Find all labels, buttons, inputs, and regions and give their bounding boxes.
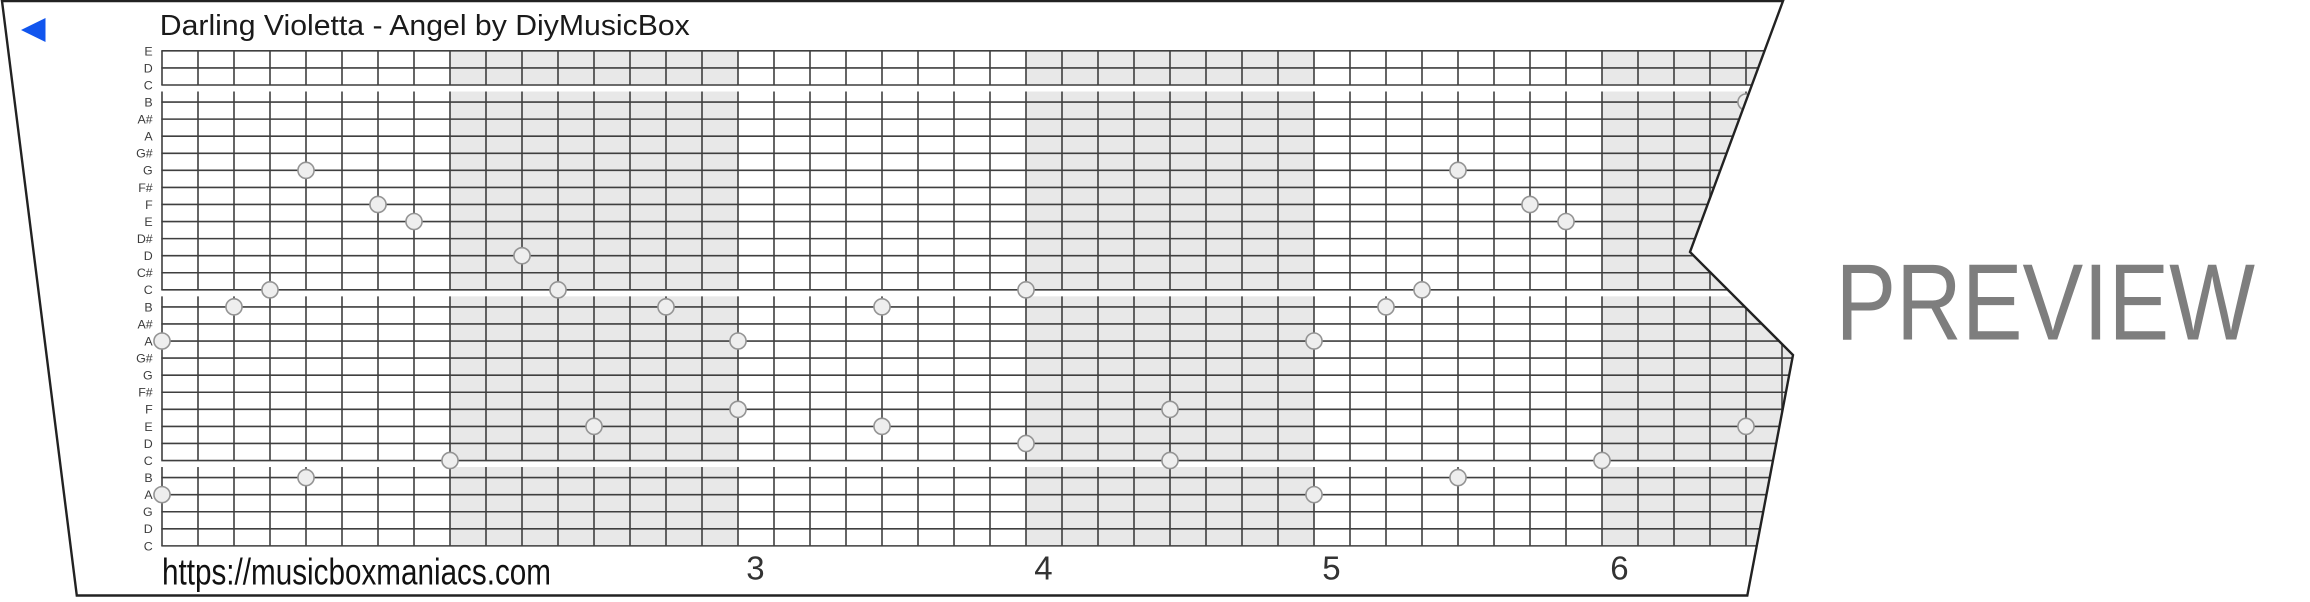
svg-text:B: B (144, 471, 152, 485)
svg-text:E: E (144, 420, 152, 434)
svg-text:PREVIEW: PREVIEW (1836, 242, 2256, 364)
svg-text:B: B (144, 95, 152, 109)
svg-text:C: C (144, 78, 153, 92)
svg-text:F: F (145, 403, 153, 417)
svg-text:F#: F# (138, 386, 153, 400)
svg-text:G: G (143, 369, 153, 383)
svg-text:C#: C# (137, 266, 153, 280)
svg-text:D: D (144, 437, 153, 451)
svg-text:A: A (144, 130, 153, 144)
svg-text:Darling Violetta - Angel by Di: Darling Violetta - Angel by DiyMusicBox (160, 10, 691, 42)
svg-text:G#: G# (136, 352, 153, 366)
svg-text:A#: A# (138, 317, 153, 331)
svg-text:5: 5 (1322, 550, 1340, 587)
svg-text:E: E (144, 44, 152, 58)
svg-text:G: G (143, 164, 153, 178)
svg-text:A#: A# (138, 113, 153, 127)
svg-text:D#: D# (137, 232, 153, 246)
svg-text:A: A (144, 488, 153, 502)
svg-text:G: G (143, 505, 153, 519)
svg-text:C: C (144, 539, 153, 553)
svg-text:3: 3 (746, 550, 764, 587)
svg-text:6: 6 (1610, 550, 1628, 587)
svg-text:B: B (144, 300, 152, 314)
svg-text:E: E (144, 215, 152, 229)
svg-text:G#: G# (136, 147, 153, 161)
svg-text:C: C (144, 283, 153, 297)
svg-text:D: D (144, 61, 153, 75)
svg-text:D: D (144, 249, 153, 263)
svg-text:F#: F# (138, 181, 153, 195)
svg-text:4: 4 (1034, 550, 1052, 587)
svg-text:D: D (144, 522, 153, 536)
svg-text:A: A (144, 334, 153, 348)
svg-text:F: F (145, 198, 153, 212)
svg-text:https://musicboxmaniacs.com: https://musicboxmaniacs.com (162, 552, 551, 593)
svg-text:C: C (144, 454, 153, 468)
